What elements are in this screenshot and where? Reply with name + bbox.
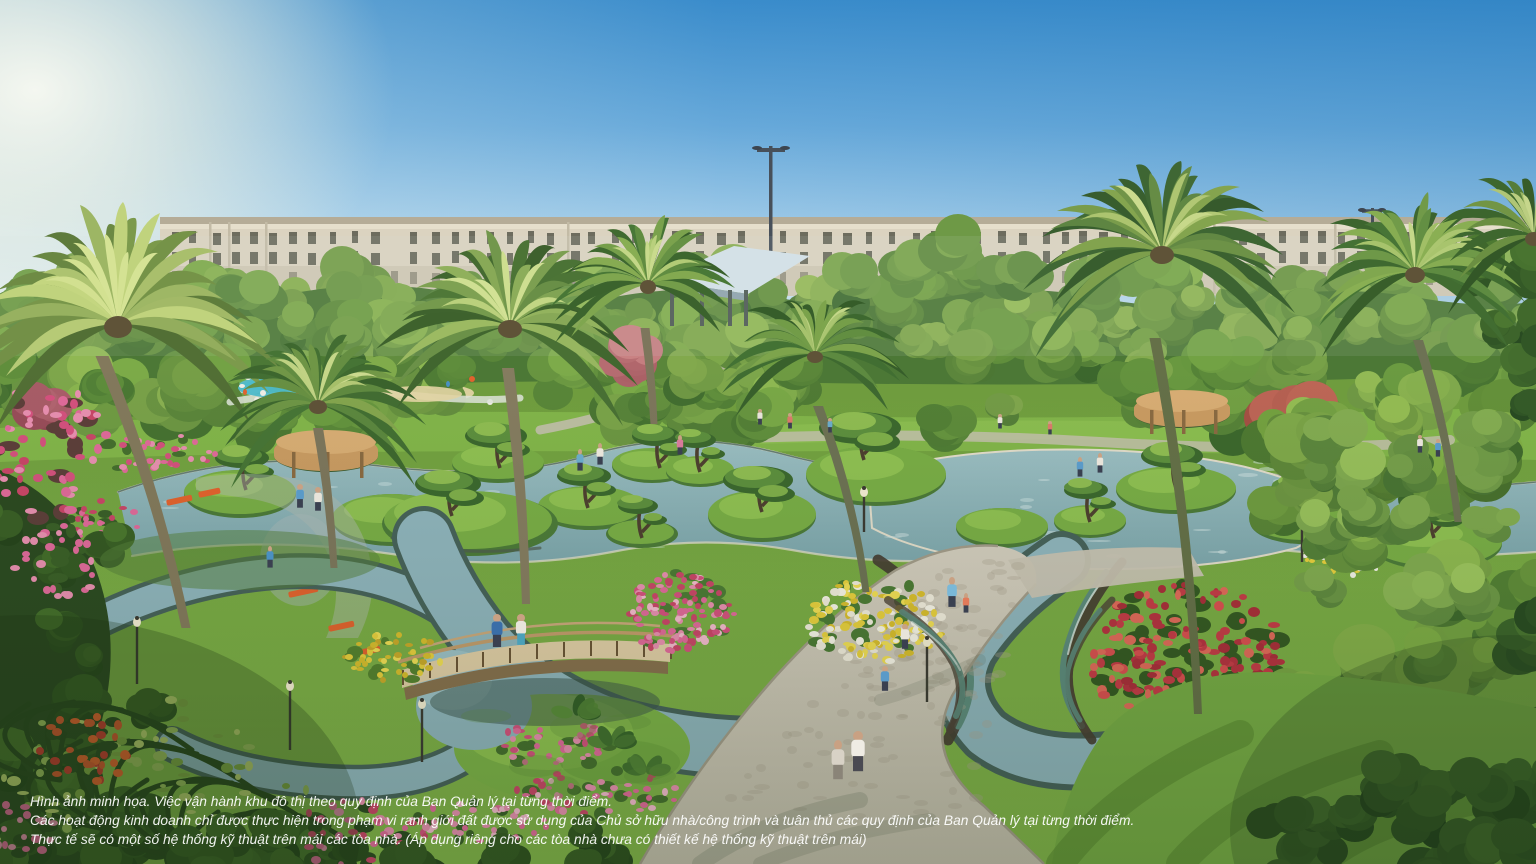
svg-text:Thực tế sẽ có một số hệ thống: Thực tế sẽ có một số hệ thống kỹ thuật t… — [30, 831, 867, 847]
svg-text:Hình ảnh minh họa. Việc vận hà: Hình ảnh minh họa. Việc vận hành khu đô … — [30, 794, 612, 809]
svg-text:Các hoạt động kinh doanh chỉ đ: Các hoạt động kinh doanh chỉ được thực h… — [30, 813, 1134, 828]
